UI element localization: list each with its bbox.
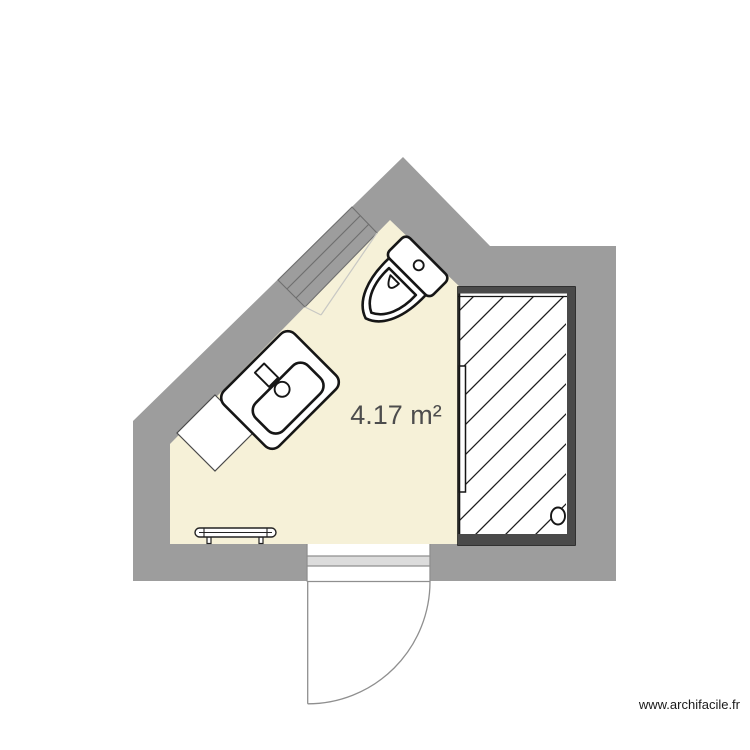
door-threshold [307,556,430,566]
shower-frame-bottom [458,534,575,545]
shower-frame-top [458,287,575,294]
floor-plan-canvas: 4.17 m² www.archifacile.fr [0,0,750,750]
room-area-label: 4.17 m² [350,400,442,430]
floor-plan-page: 4.17 m² www.archifacile.fr [0,0,750,750]
radiator-leg [207,537,211,544]
shower-tray[interactable] [458,287,575,545]
shower-frame-right [567,287,575,545]
radiator-leg [259,537,263,544]
watermark-url: www.archifacile.fr [638,697,741,712]
shower-drain [551,508,565,525]
shower-door-handle[interactable] [460,366,466,492]
